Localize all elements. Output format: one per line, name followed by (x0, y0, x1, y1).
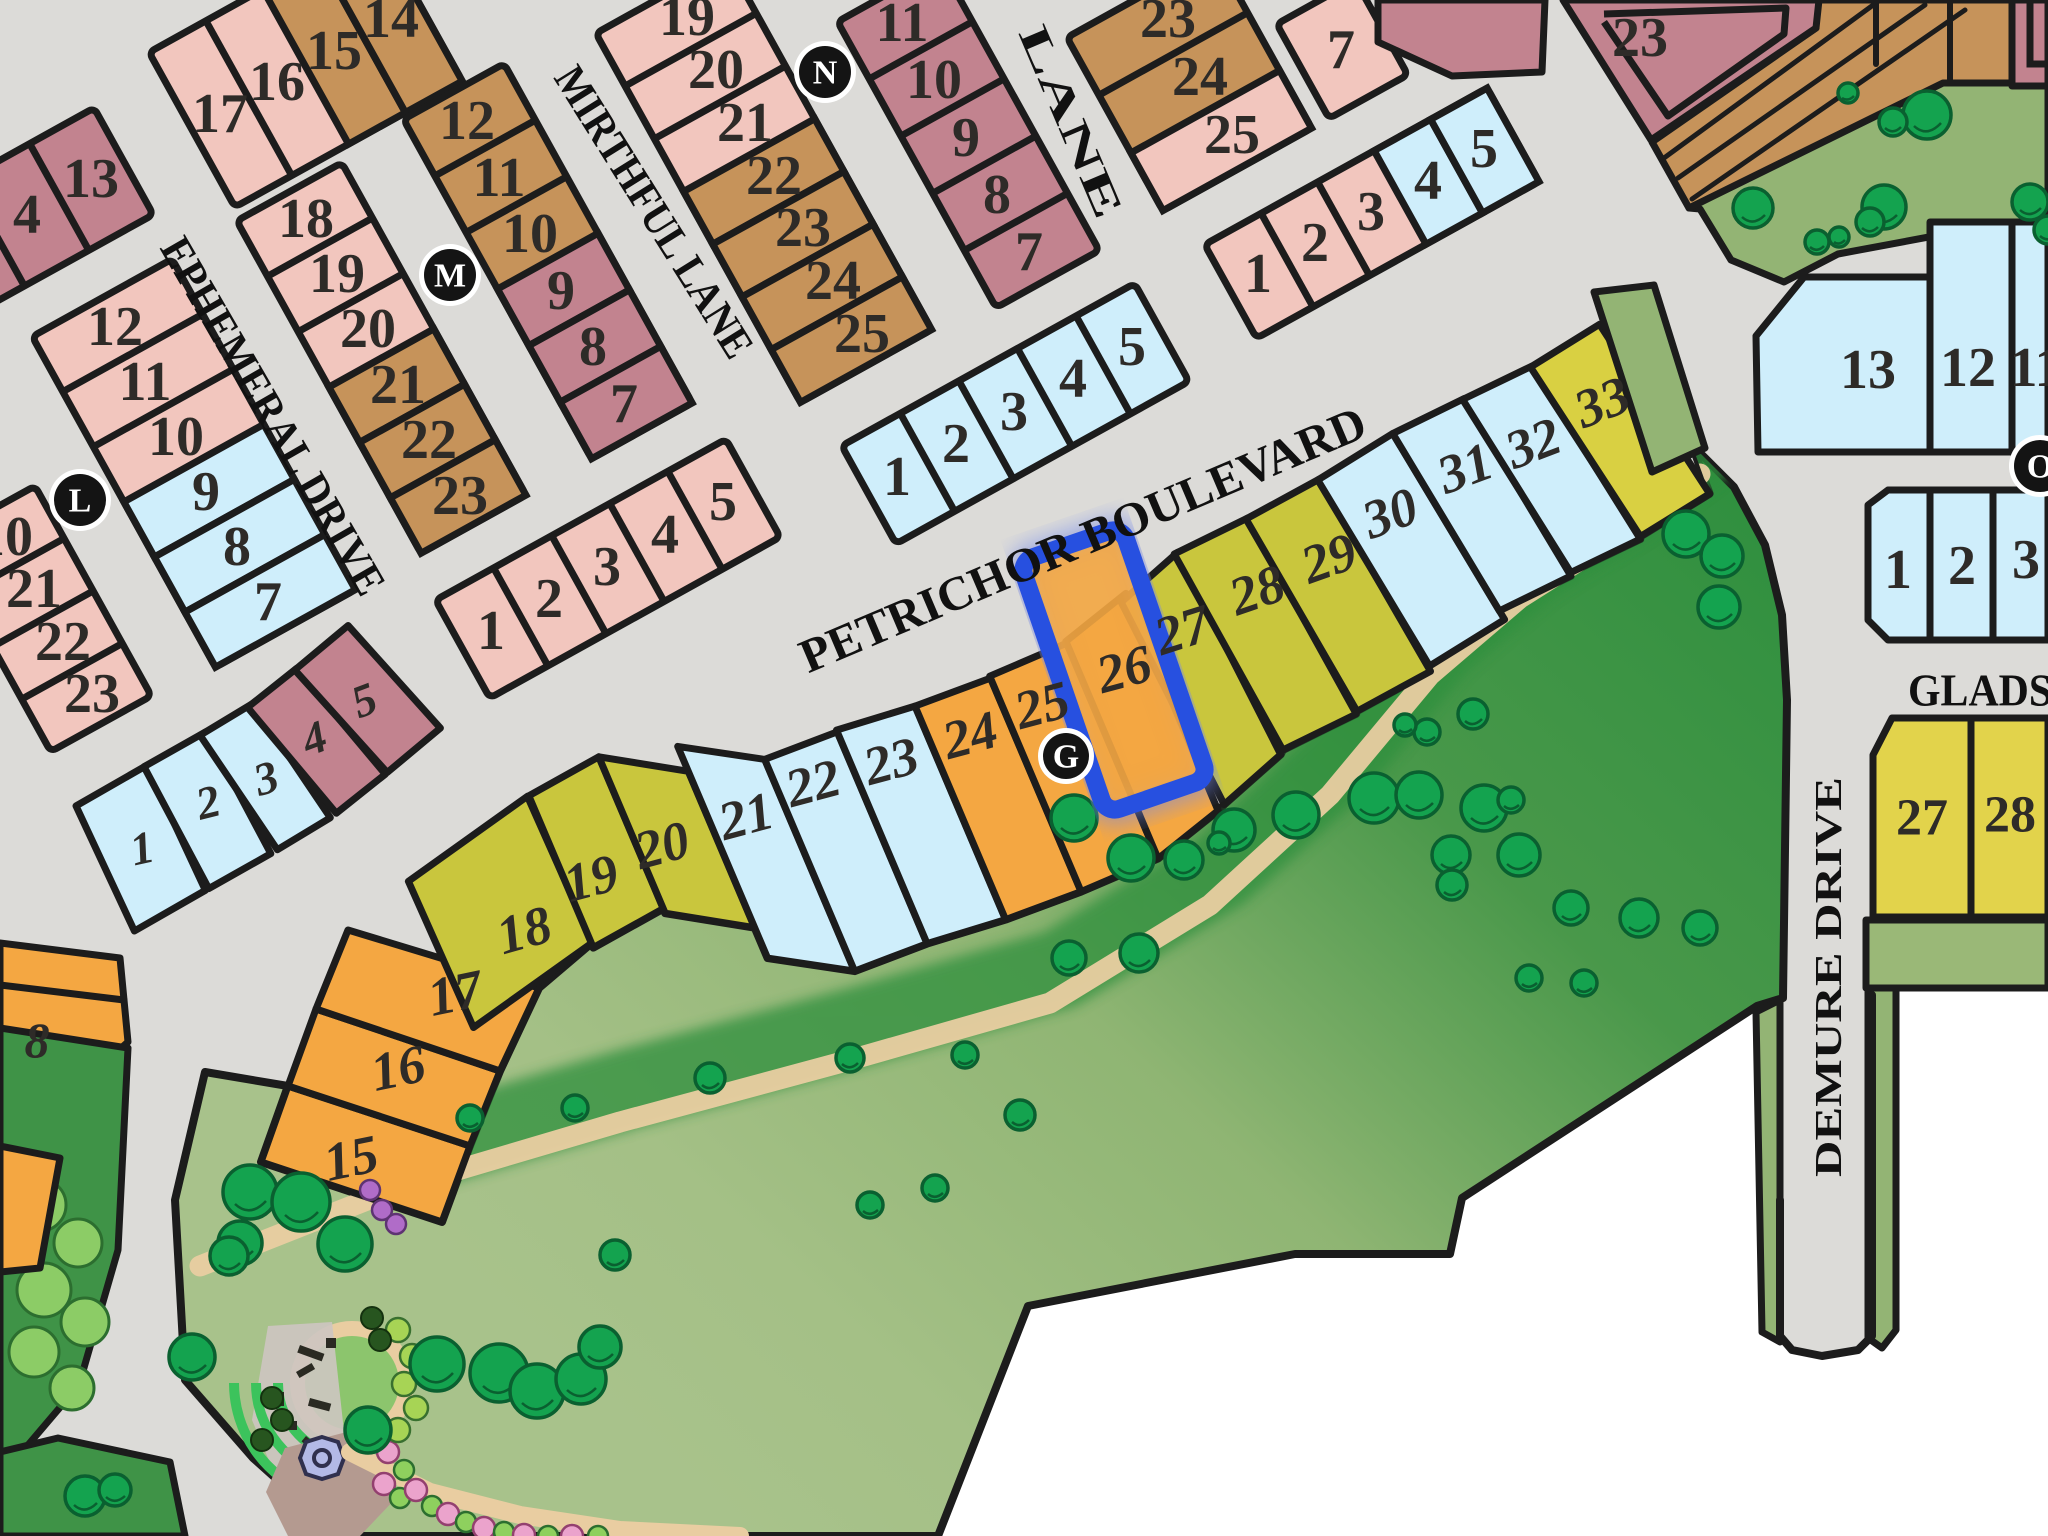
svg-text:5: 5 (709, 471, 737, 533)
svg-text:8: 8 (579, 316, 607, 378)
svg-text:23: 23 (432, 465, 488, 527)
svg-text:7: 7 (610, 373, 638, 435)
svg-text:2: 2 (1948, 535, 1976, 597)
svg-text:L: L (69, 483, 92, 520)
svg-text:28: 28 (1984, 787, 2036, 844)
svg-text:11: 11 (119, 351, 172, 413)
svg-text:3: 3 (593, 536, 621, 598)
svg-text:10: 10 (502, 203, 558, 265)
svg-text:DEMURE DRIVE: DEMURE DRIVE (1808, 777, 1850, 1177)
svg-text:11: 11 (473, 147, 526, 209)
svg-text:M: M (434, 258, 466, 295)
svg-text:9: 9 (952, 107, 980, 169)
svg-text:12: 12 (439, 90, 495, 152)
svg-text:23: 23 (1612, 7, 1668, 69)
svg-text:4: 4 (1414, 150, 1442, 212)
svg-text:7: 7 (254, 571, 282, 633)
svg-text:27: 27 (1896, 790, 1948, 847)
svg-text:GLADSTONE: GLADSTONE (1908, 665, 2048, 716)
svg-text:8: 8 (25, 1012, 50, 1068)
svg-text:2: 2 (942, 413, 970, 475)
svg-text:5: 5 (1118, 316, 1146, 378)
svg-text:N: N (813, 55, 838, 92)
svg-text:20: 20 (340, 298, 396, 360)
svg-text:2: 2 (1301, 212, 1329, 274)
svg-text:21: 21 (370, 354, 426, 416)
svg-text:1: 1 (1244, 243, 1272, 305)
svg-text:25: 25 (1204, 104, 1260, 166)
svg-text:4: 4 (651, 504, 679, 566)
svg-text:15: 15 (306, 20, 362, 82)
svg-text:4: 4 (1059, 348, 1087, 410)
svg-text:25: 25 (834, 303, 890, 365)
svg-text:3: 3 (1357, 181, 1385, 243)
svg-text:10: 10 (906, 49, 962, 111)
svg-text:1: 1 (1884, 539, 1912, 601)
svg-text:7: 7 (1015, 221, 1043, 283)
svg-text:14: 14 (363, 0, 419, 50)
svg-text:1: 1 (477, 600, 505, 662)
svg-text:9: 9 (192, 461, 220, 523)
svg-text:12: 12 (1940, 337, 1996, 399)
svg-text:11: 11 (2010, 337, 2048, 399)
svg-text:11: 11 (876, 0, 929, 54)
svg-text:19: 19 (309, 243, 365, 305)
svg-text:23: 23 (64, 663, 120, 725)
svg-text:10: 10 (148, 406, 204, 468)
svg-text:12: 12 (87, 296, 143, 358)
svg-text:5: 5 (1470, 118, 1498, 180)
svg-text:3: 3 (2012, 529, 2040, 591)
svg-text:G: G (1053, 739, 1079, 776)
svg-text:3: 3 (1000, 381, 1028, 443)
svg-text:16: 16 (249, 51, 305, 113)
svg-text:2: 2 (535, 568, 563, 630)
svg-text:4: 4 (13, 184, 41, 246)
svg-text:1: 1 (883, 446, 911, 508)
svg-text:22: 22 (401, 409, 457, 471)
svg-text:O: O (2027, 449, 2048, 486)
svg-text:13: 13 (63, 148, 119, 210)
svg-text:8: 8 (983, 164, 1011, 226)
svg-text:18: 18 (278, 188, 334, 250)
svg-text:13: 13 (1840, 339, 1896, 401)
svg-text:7: 7 (1327, 19, 1355, 81)
svg-text:9: 9 (547, 260, 575, 322)
svg-text:17: 17 (192, 83, 248, 145)
svg-text:23: 23 (1140, 0, 1196, 50)
svg-text:24: 24 (1172, 46, 1228, 108)
svg-text:8: 8 (223, 516, 251, 578)
